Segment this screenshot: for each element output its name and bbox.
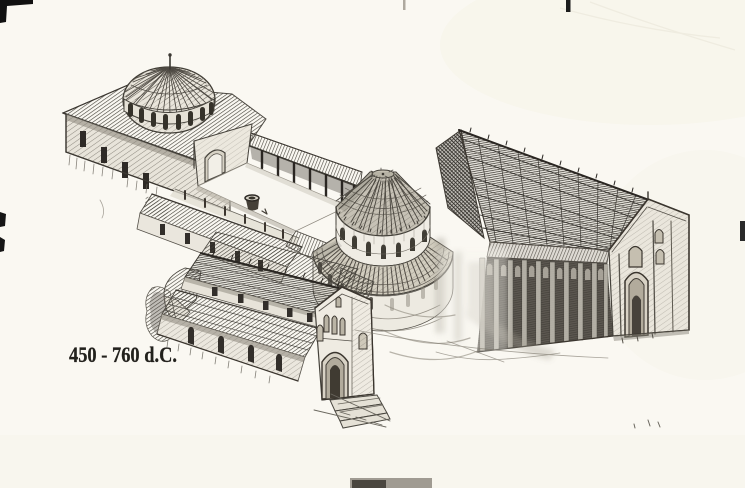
svg-text:450 - 760 d.C.: 450 - 760 d.C.	[69, 342, 177, 367]
